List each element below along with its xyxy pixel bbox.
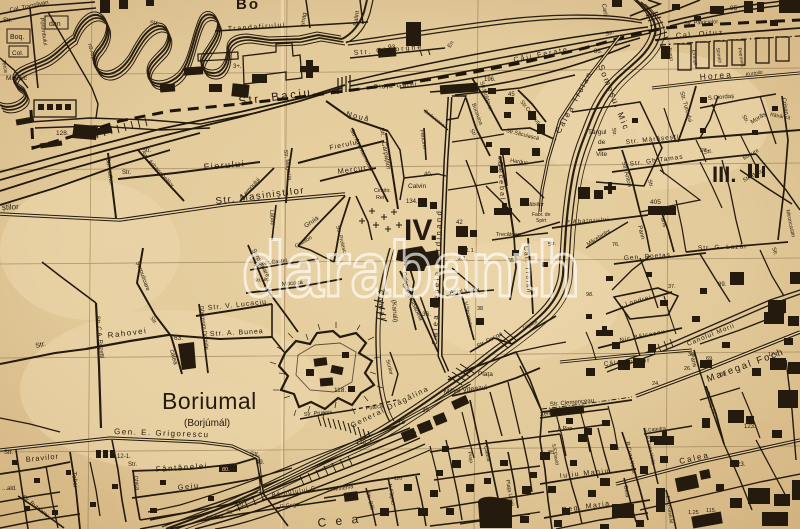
svg-text:123.: 123. — [744, 424, 756, 430]
svg-text:Calvin: Calvin — [408, 183, 426, 190]
svg-text:Bo: Bo — [236, 0, 260, 13]
svg-text:174.: 174. — [768, 352, 779, 358]
svg-text:69.: 69. — [706, 356, 714, 362]
svg-text:95: 95 — [730, 5, 738, 12]
svg-text:3+.: 3+. — [233, 64, 242, 70]
svg-text:98.: 98. — [586, 292, 594, 298]
svg-text:Vrăbiilor: Vrăbiilor — [524, 202, 544, 208]
svg-text:Piața: Piața — [478, 371, 493, 378]
svg-text:115.: 115. — [706, 508, 717, 514]
svg-text:Str.: Str. — [250, 451, 260, 458]
svg-text:Str.: Str. — [3, 18, 12, 24]
svg-text:120: 120 — [234, 502, 243, 508]
svg-text:45: 45 — [508, 92, 515, 98]
svg-text:Vite: Vite — [596, 151, 607, 158]
svg-text:24.: 24. — [652, 381, 660, 387]
svg-text:405: 405 — [650, 199, 661, 206]
svg-text:Str.: Str. — [4, 450, 13, 456]
svg-text:Col.: Col. — [12, 50, 24, 57]
svg-text:49.: 49. — [256, 460, 265, 466]
svg-text:III.: III. — [712, 162, 736, 187]
svg-text:36: 36 — [688, 352, 694, 358]
svg-text:1.25: 1.25 — [688, 510, 699, 516]
svg-text:dan: dan — [49, 21, 61, 28]
svg-text:18: 18 — [398, 420, 405, 426]
svg-text:Spirt: Spirt — [536, 218, 547, 224]
svg-text:Boriumal: Boriumal — [162, 388, 257, 414]
svg-text:Boq.: Boq. — [10, 34, 24, 41]
svg-text:de: de — [598, 139, 606, 146]
svg-text:76.: 76. — [612, 242, 620, 248]
svg-text:123.: 123. — [733, 461, 746, 468]
svg-text:134.: 134. — [406, 199, 418, 205]
svg-text:116: 116 — [394, 476, 402, 482]
svg-text:39.: 39. — [422, 408, 431, 414]
svg-text:80.: 80. — [222, 467, 230, 473]
svg-text:L.Pop: L.Pop — [558, 426, 572, 432]
svg-text:10: 10 — [716, 488, 722, 494]
svg-text:40.: 40. — [226, 510, 234, 516]
svg-text:63.: 63. — [174, 335, 183, 342]
svg-text:89.: 89. — [718, 282, 727, 288]
svg-text:Str.: Str. — [128, 462, 137, 468]
svg-text:Manoic: Manoic — [6, 75, 28, 82]
svg-text:Str.: Str. — [150, 21, 159, 27]
svg-text:știlor: știlor — [2, 202, 20, 212]
svg-text:118.: 118. — [334, 387, 346, 394]
svg-text:...ald.: ...ald. — [2, 486, 17, 492]
svg-text:Str.: Str. — [142, 148, 151, 154]
svg-text:128.: 128. — [356, 440, 368, 446]
svg-text:26.: 26. — [684, 366, 692, 372]
svg-text:(Borjúmál): (Borjúmál) — [184, 418, 230, 429]
svg-text:darabanth: darabanth — [242, 225, 580, 313]
svg-text:37.: 37. — [668, 284, 676, 290]
svg-text:80.: 80. — [720, 372, 728, 378]
svg-text:12-1.: 12-1. — [117, 454, 131, 460]
svg-text:86.: 86. — [594, 49, 603, 55]
svg-text:Târgul: Târgul — [588, 129, 607, 136]
svg-text:Cimitir.: Cimitir. — [374, 188, 391, 194]
svg-text:128.: 128. — [56, 130, 69, 137]
svg-text:Ref.: Ref. — [376, 195, 387, 201]
svg-text:Str.: Str. — [122, 170, 131, 176]
svg-text:196.: 196. — [484, 77, 496, 83]
svg-text:40.: 40. — [424, 172, 433, 178]
